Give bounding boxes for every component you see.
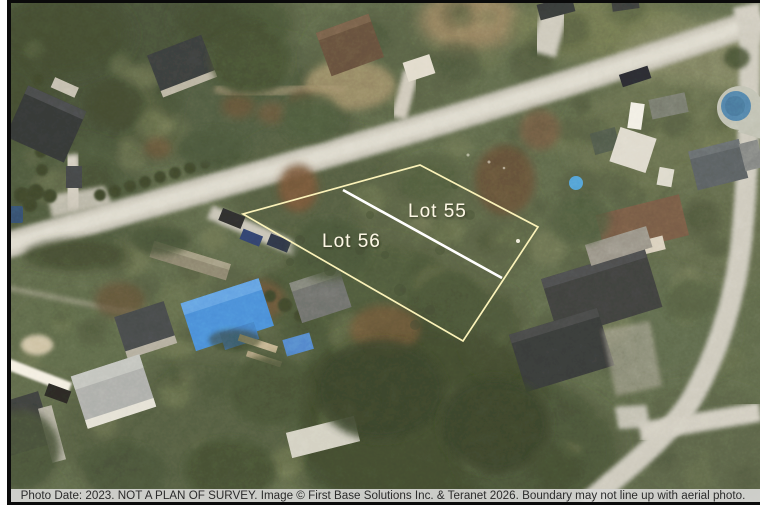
svg-text:Lot 55: Lot 55 xyxy=(408,201,467,222)
svg-text:Photo Date: 2023. NOT A PLAN O: Photo Date: 2023. NOT A PLAN OF SURVEY. … xyxy=(21,489,746,502)
svg-text:Lot 56: Lot 56 xyxy=(322,231,381,252)
